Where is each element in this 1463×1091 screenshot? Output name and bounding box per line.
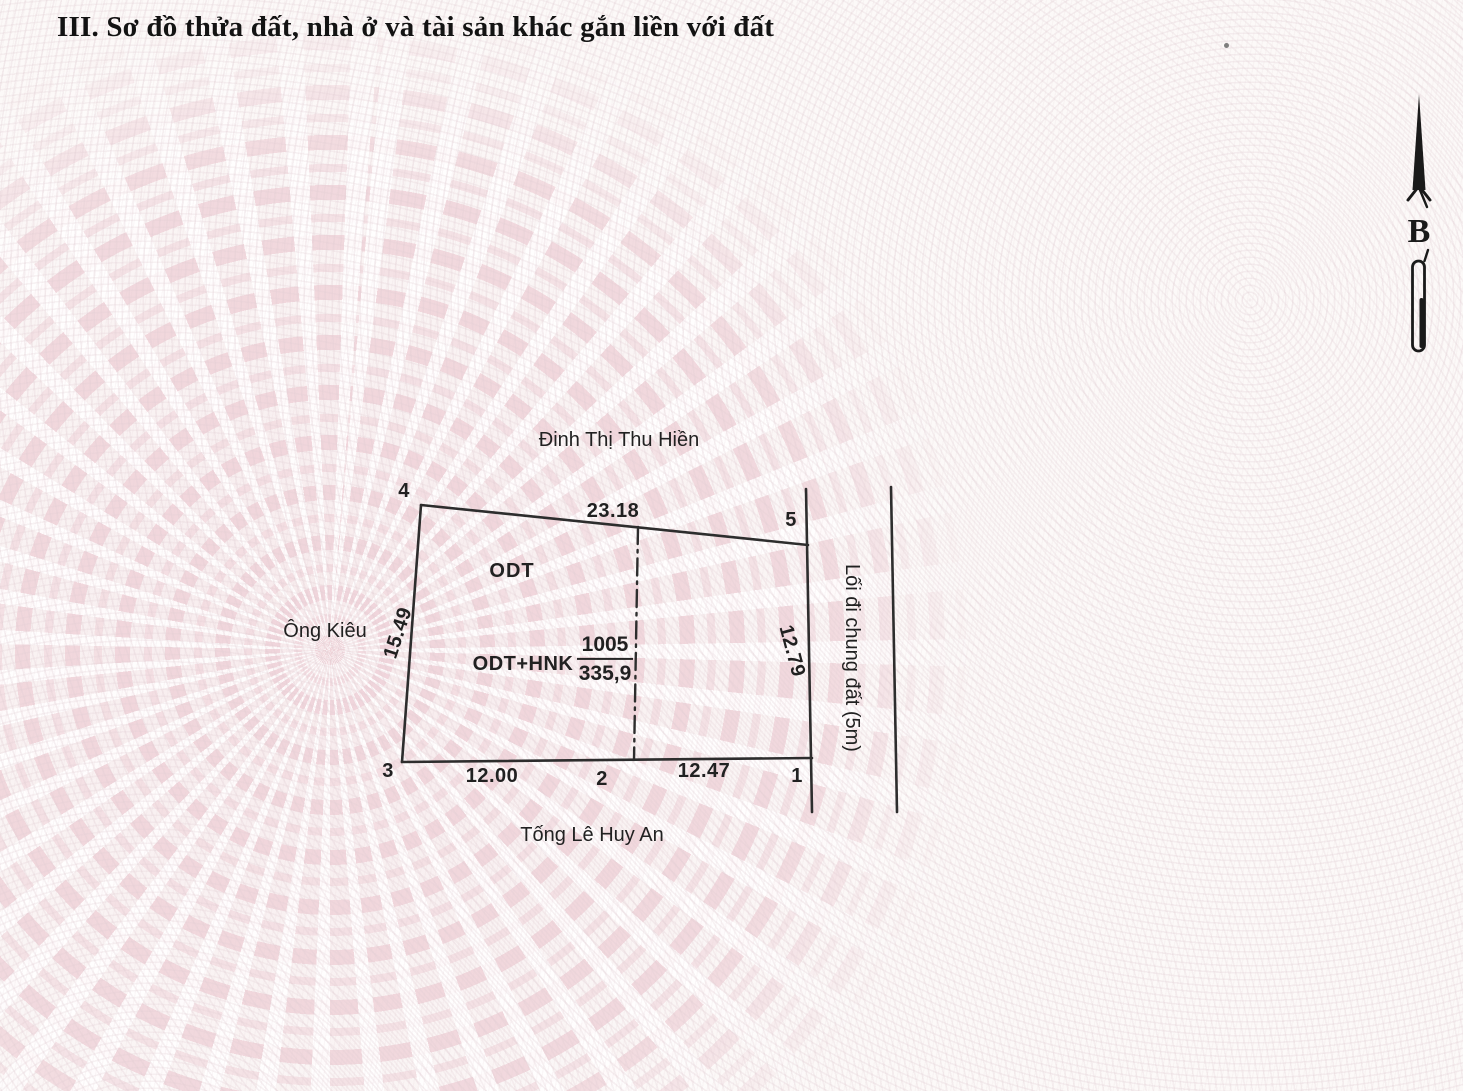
adjacent-owner-west: Ông Kiêu [283,621,366,641]
adjacent-owner-north: Đinh Thị Thu Hiền [539,430,699,450]
adjacent-owner-south: Tống Lê Huy An [520,825,663,845]
measurement-bottom-left: 12.00 [466,766,519,786]
path-right-boundary-line [891,487,897,812]
certificate-page: III. Sơ đồ thửa đất, nhà ở và tài sản kh… [0,0,1463,1091]
land-use-code-odt-hnk: ODT+HNK [473,654,574,674]
vertex-3: 3 [382,761,394,781]
vertex-1: 1 [791,766,803,786]
parcel-right-edge [806,489,812,812]
vertex-4: 4 [398,481,410,501]
parcel-bottom-edge [402,758,812,762]
adjacent-path-east: Lối đi chung đất (5m) [842,564,862,752]
vertex-2: 2 [596,769,608,789]
measurement-bottom-right: 12.47 [678,761,731,781]
north-label: B [1408,215,1431,249]
parcel-diagram [0,0,1463,1091]
measurement-top: 23.18 [587,501,640,521]
parcel-area: 335,9 [579,662,632,685]
parcel-number-area: 1005 335,9 [577,633,633,685]
land-use-code-odt: ODT [489,561,534,581]
parcel-divider-line [634,527,638,760]
vertex-5: 5 [785,510,797,530]
parcel-number: 1005 [582,633,629,656]
fraction-bar [577,658,633,660]
